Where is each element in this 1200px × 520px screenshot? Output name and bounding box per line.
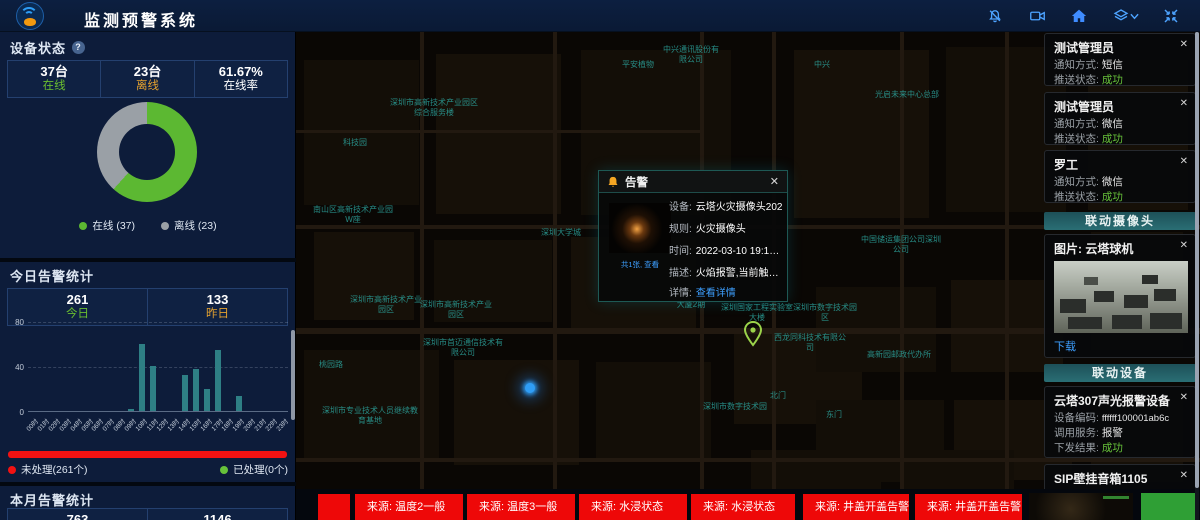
map-road bbox=[900, 32, 904, 520]
legend-offline[interactable]: 离线 (23) bbox=[161, 218, 217, 233]
map-place-label: 深圳市数字技术园区 bbox=[792, 303, 858, 323]
map-building bbox=[596, 362, 711, 462]
map-building bbox=[436, 54, 561, 214]
map-place-label: 深圳市专业技术人员继续教育基地 bbox=[320, 406, 420, 426]
stat-offline: 23台 离线 bbox=[100, 61, 193, 97]
linked-camera-section-header: 联动摄像头 bbox=[1044, 212, 1196, 230]
alert-ticker-bar: 来源: 温度2一般来源: 温度3一般来源: 水浸状态来源: 水浸状态来源: 井盖… bbox=[296, 489, 1200, 520]
linked-device-card: ✕ 云塔307声光报警设备 设备编码: ffffff100001ab6c 调用服… bbox=[1044, 386, 1196, 458]
alert-popup: 告警 ✕ 共1张, 查看 设备: 云塔火灾摄像头202 规则: 火灾摄像头 时间… bbox=[598, 170, 788, 302]
close-icon[interactable]: ✕ bbox=[1180, 392, 1188, 403]
map-place-label: 深圳市数字技术园 bbox=[702, 402, 768, 412]
stat-today: 261 今日 bbox=[8, 289, 147, 325]
map-place-label: 中国储运集团公司深圳公司 bbox=[860, 235, 942, 255]
legend-processed: 已处理(0个) bbox=[220, 462, 288, 477]
app-title: 监测预警系统 bbox=[84, 7, 198, 31]
app-header: 监测预警系统 bbox=[0, 0, 1200, 32]
map-place-label: 中兴 bbox=[810, 60, 834, 70]
help-icon[interactable]: ? bbox=[72, 41, 85, 54]
alert-snapshot-image[interactable] bbox=[609, 203, 671, 253]
map-place-label: 北门 bbox=[768, 391, 788, 401]
alert-rule-row: 规则: 火灾摄像头 bbox=[669, 223, 784, 236]
bar bbox=[139, 344, 145, 412]
app-logo-icon bbox=[16, 2, 44, 30]
layers-icon[interactable] bbox=[1112, 7, 1140, 25]
alert-time-row: 时间: 2022-03-10 19:13:07 bbox=[669, 245, 784, 258]
today-alerts-title: 今日告警统计 bbox=[10, 266, 94, 285]
y-axis-tick: 80 bbox=[6, 318, 24, 327]
ticker-alert[interactable]: 来源: 温度2一般 bbox=[355, 494, 463, 520]
alert-popup-title: 告警 bbox=[625, 174, 764, 190]
linked-camera-card: ✕ 图片: 云塔球机 下载 bbox=[1044, 234, 1196, 358]
stat-online: 37台 在线 bbox=[8, 61, 100, 97]
green-location-pin[interactable] bbox=[742, 320, 764, 348]
map-place-label: 深圳市高新技术产业园区 bbox=[420, 300, 492, 320]
month-alerts-title: 本月告警统计 bbox=[10, 490, 94, 509]
close-icon[interactable]: ✕ bbox=[1180, 156, 1188, 167]
map-road bbox=[296, 458, 1200, 462]
device-status-title: 设备状态 ? bbox=[10, 38, 85, 57]
legend-unprocessed: 未处理(261个) bbox=[8, 462, 88, 477]
today-alerts-stats: 261 今日 133 昨日 bbox=[7, 288, 288, 326]
alert-popup-header: 告警 ✕ bbox=[599, 171, 787, 193]
ticker-alert[interactable]: 来源: 温度3一般 bbox=[467, 494, 575, 520]
map-place-label: 深圳市首迈通信技术有限公司 bbox=[420, 338, 506, 358]
alert-detail-row: 详情: 查看详情 bbox=[669, 287, 784, 300]
fullscreen-icon[interactable] bbox=[1162, 7, 1182, 25]
map-building bbox=[794, 50, 929, 218]
bar bbox=[193, 369, 199, 411]
legend-online[interactable]: 在线 (37) bbox=[79, 218, 135, 233]
device-status-stats: 37台 在线 23台 离线 61.67% 在线率 bbox=[7, 60, 288, 98]
y-axis-tick: 0 bbox=[6, 408, 24, 417]
device-location-dot[interactable] bbox=[525, 383, 535, 393]
left-scrollbar-thumb[interactable] bbox=[291, 330, 295, 420]
alert-snapshot-link[interactable]: 共1张, 查看 bbox=[609, 259, 671, 270]
bar bbox=[215, 350, 221, 411]
download-link[interactable]: 下载 bbox=[1054, 338, 1076, 354]
header-toolbar bbox=[986, 7, 1182, 25]
bar bbox=[128, 409, 134, 411]
map-building bbox=[454, 360, 579, 465]
left-sidebar: 设备状态 ? 37台 在线 23台 离线 61.67% 在线率 在线 (37) bbox=[0, 32, 296, 520]
alert-device-row: 设备: 云塔火灾摄像头202 bbox=[669, 201, 784, 214]
map-road bbox=[1005, 32, 1009, 520]
map-place-label: 平安植物 bbox=[618, 60, 658, 70]
camera-frame-preview[interactable] bbox=[1029, 493, 1133, 520]
map-place-label: 南山区高新技术产业园W座 bbox=[312, 205, 394, 225]
video-camera-icon[interactable] bbox=[1028, 7, 1048, 25]
y-axis-tick: 40 bbox=[6, 363, 24, 372]
ticker-alert[interactable]: 来源: 水浸状态 bbox=[579, 494, 687, 520]
monitoring-dashboard: 中兴通讯股份有限公司平安植物中兴光启未来中心总部深圳市高新技术产业园区综合服务楼… bbox=[0, 0, 1200, 520]
notification-bell-icon[interactable] bbox=[986, 7, 1006, 25]
map-place-label: 深圳市高新技术产业园区综合服务楼 bbox=[388, 98, 480, 118]
unprocessed-progress-bar bbox=[8, 451, 287, 458]
stat-month-2: 1146 bbox=[147, 509, 287, 520]
month-alerts-stats: 763 1146 bbox=[7, 508, 288, 520]
ticker-alert[interactable] bbox=[318, 494, 350, 520]
ticker-alert[interactable]: 来源: 水浸状态 bbox=[691, 494, 795, 520]
camera-image-caption: 图片: 云塔球机 bbox=[1054, 241, 1186, 257]
map-road bbox=[553, 32, 557, 520]
ticker-alert[interactable]: 来源: 井盖开盖告警 bbox=[803, 494, 909, 520]
scrollbar-thumb[interactable] bbox=[1195, 32, 1199, 488]
stat-month-1: 763 bbox=[8, 509, 147, 520]
stat-yesterday: 133 昨日 bbox=[147, 289, 287, 325]
map-place-label: 西龙同科技术有限公司 bbox=[774, 333, 846, 353]
bar bbox=[204, 389, 210, 412]
map-place-label: 桃园路 bbox=[316, 360, 346, 370]
close-icon[interactable]: ✕ bbox=[1180, 470, 1188, 481]
stat-online-rate: 61.67% 在线率 bbox=[194, 61, 287, 97]
map-place-label: 东门 bbox=[824, 410, 844, 420]
map-place-label: 光启未来中心总部 bbox=[872, 90, 942, 100]
close-icon[interactable]: ✕ bbox=[1180, 39, 1188, 50]
view-detail-link[interactable]: 查看详情 bbox=[696, 287, 736, 300]
donut-legend: 在线 (37) 离线 (23) bbox=[0, 218, 296, 233]
bar bbox=[150, 366, 156, 411]
bar bbox=[182, 375, 188, 411]
notification-card: ✕ 罗工 通知方式: 微信 推送状态: 成功 bbox=[1044, 150, 1196, 203]
alarm-icon bbox=[607, 176, 619, 188]
processed-legend: 未处理(261个) 已处理(0个) bbox=[8, 462, 288, 477]
map-place-label: 中兴通讯股份有限公司 bbox=[660, 45, 722, 65]
ticker-alert[interactable]: 来源: 井盖开盖告警 bbox=[915, 494, 1022, 520]
home-icon[interactable] bbox=[1070, 7, 1090, 25]
map-place-label: 科技园 bbox=[340, 138, 370, 148]
close-icon[interactable]: ✕ bbox=[770, 175, 779, 188]
map-place-label: 高新园邮政代办所 bbox=[864, 350, 934, 360]
alert-desc-row: 描述: 火焰报警,当前触发值为... bbox=[669, 267, 784, 280]
green-frame-preview[interactable] bbox=[1141, 493, 1196, 520]
camera-snapshot-image bbox=[1054, 261, 1188, 333]
chevron-down-icon bbox=[1130, 13, 1139, 20]
close-icon[interactable]: ✕ bbox=[1180, 240, 1188, 251]
bar bbox=[236, 396, 242, 411]
notification-card: ✕ 测试管理员 通知方式: 短信 推送状态: 成功 bbox=[1044, 33, 1196, 86]
right-scrollbar bbox=[1195, 32, 1199, 520]
map-place-label: 深圳市高新技术产业园区 bbox=[350, 295, 422, 315]
device-status-donut-chart bbox=[97, 102, 197, 202]
map-place-label: 深圳大学城 bbox=[536, 228, 586, 238]
linked-device-section-header: 联动设备 bbox=[1044, 364, 1196, 382]
close-icon[interactable]: ✕ bbox=[1180, 98, 1188, 109]
notification-card: ✕ 测试管理员 通知方式: 微信 推送状态: 成功 bbox=[1044, 92, 1196, 145]
map-road bbox=[296, 130, 700, 133]
